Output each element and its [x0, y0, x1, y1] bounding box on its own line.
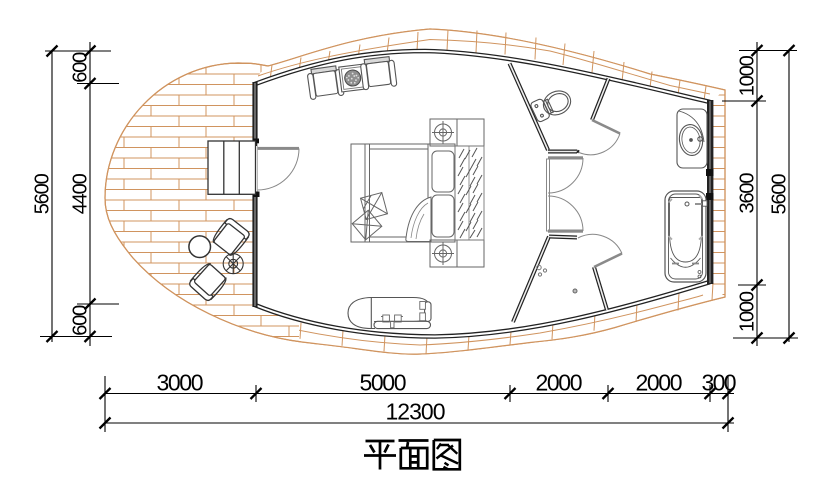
- svg-text:1000: 1000: [737, 291, 759, 332]
- svg-text:1000: 1000: [737, 55, 759, 96]
- svg-text:5000: 5000: [360, 370, 407, 396]
- svg-text:4400: 4400: [70, 173, 92, 214]
- svg-text:12300: 12300: [386, 399, 446, 425]
- svg-text:300: 300: [702, 370, 737, 396]
- svg-text:3600: 3600: [737, 173, 759, 214]
- svg-text:5600: 5600: [32, 173, 54, 214]
- svg-text:2000: 2000: [536, 370, 583, 396]
- svg-text:2000: 2000: [636, 370, 683, 396]
- svg-text:3000: 3000: [157, 370, 204, 396]
- svg-text:600: 600: [70, 305, 92, 336]
- svg-text:5600: 5600: [769, 174, 791, 215]
- svg-text:600: 600: [70, 52, 92, 83]
